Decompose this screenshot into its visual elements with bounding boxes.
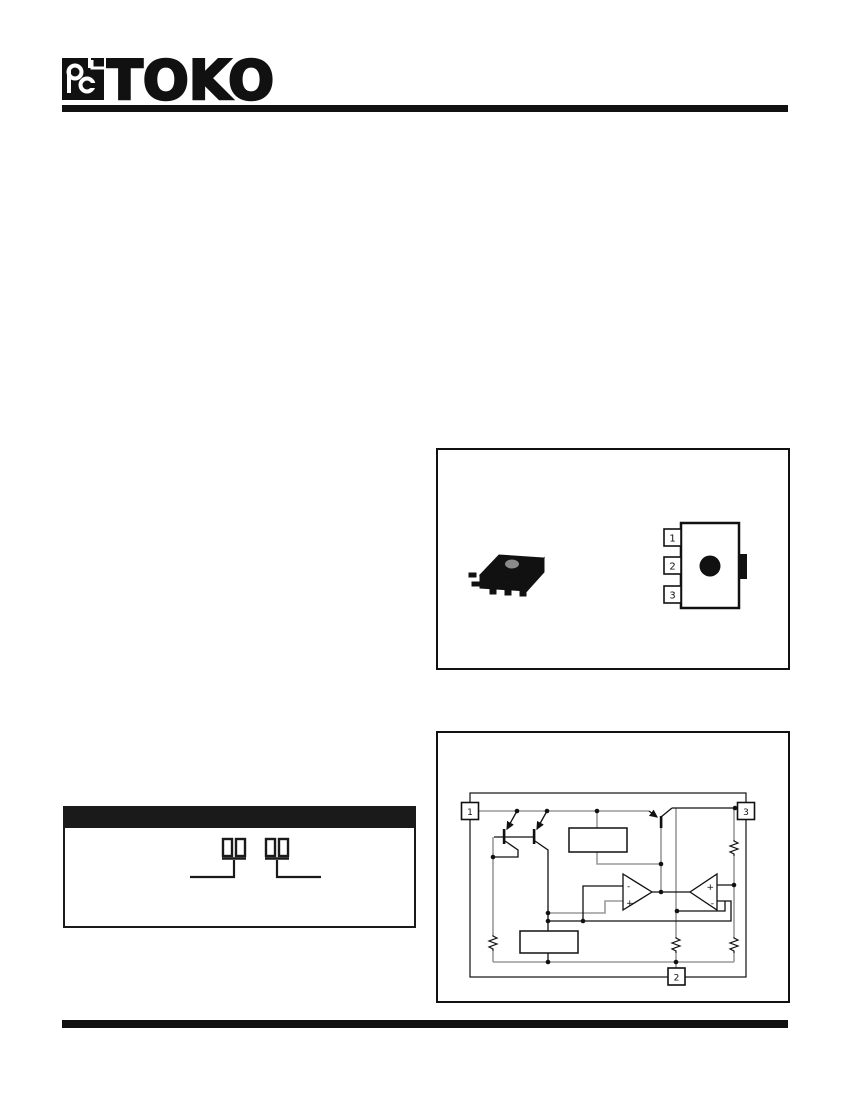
toko-logo-icon xyxy=(62,58,105,101)
pinout-tab xyxy=(739,554,747,579)
opamp-right: + - xyxy=(690,874,717,910)
datasheet-page: TOKO xyxy=(0,0,850,1100)
marking-diagram xyxy=(65,828,414,926)
pin1-indicator-dot xyxy=(505,560,519,569)
marking-info-box xyxy=(63,806,416,928)
pinout-pin-3-label: 3 xyxy=(669,591,675,602)
package-pinout-drawing: 1 2 3 xyxy=(664,523,747,608)
function-block-top xyxy=(569,828,627,852)
function-block-bottom xyxy=(520,931,578,953)
marking-header-bar xyxy=(65,808,414,828)
opamp-left-noninverting-label: + xyxy=(626,899,634,909)
diagram-pin-3-label: 3 xyxy=(743,808,749,818)
toko-wordmark: TOKO xyxy=(106,57,356,103)
diagram-pin-2-label: 2 xyxy=(674,974,680,984)
pinout-pin-1-label: 1 xyxy=(669,534,675,545)
pnp-transistor-pair xyxy=(503,811,547,844)
diagram-pin-1-label: 1 xyxy=(467,808,473,818)
marking-leader-line-1 xyxy=(190,860,234,877)
marking-leader-line-2 xyxy=(277,860,321,877)
pinout-center-dot xyxy=(700,556,721,577)
opamp-left-inverting-label: - xyxy=(627,882,630,892)
block-diagram: - + + - xyxy=(438,733,788,1001)
opamp-right-inverting-label: - xyxy=(711,899,714,909)
toko-logo: TOKO xyxy=(62,57,402,103)
marking-placeholder-group-2 xyxy=(265,839,321,877)
block-diagram-figure: - + + - xyxy=(436,731,790,1003)
marking-placeholder-group-1 xyxy=(190,839,246,877)
header-rule xyxy=(62,105,788,112)
package-figure: 1 2 3 xyxy=(436,448,790,670)
footer-rule xyxy=(62,1020,788,1028)
opamp-left: - + xyxy=(623,874,652,910)
pinout-pin-2-label: 2 xyxy=(669,562,675,573)
brand-name-text: TOKO xyxy=(106,57,274,103)
opamp-right-noninverting-label: + xyxy=(706,883,714,893)
package-figure-drawing: 1 2 3 xyxy=(438,450,788,668)
package-3d-drawing xyxy=(468,555,544,597)
pass-transistor xyxy=(649,811,662,828)
